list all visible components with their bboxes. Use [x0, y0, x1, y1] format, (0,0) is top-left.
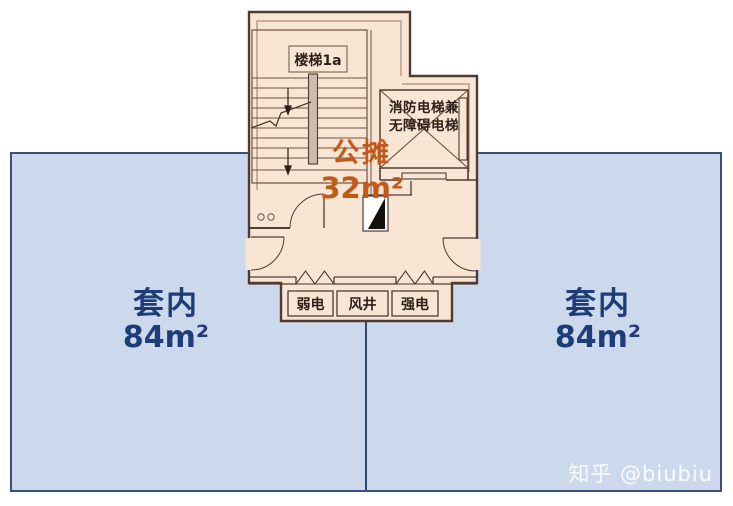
- shared-area-unit: m²: [361, 171, 404, 205]
- left-unit-size: 84m²: [101, 321, 231, 355]
- shared-area-size: 32m²: [302, 171, 422, 206]
- right-unit-label: 套内 84m²: [533, 287, 663, 355]
- left-unit-name: 套内: [101, 287, 231, 321]
- elevator-label-line2: 无障碍电梯: [380, 117, 468, 135]
- left-unit-area-value: 84: [123, 320, 165, 355]
- right-unit-size: 84m²: [533, 321, 663, 355]
- watermark: 知乎 @biubiu: [568, 458, 713, 488]
- shared-area-value: 32: [320, 171, 360, 205]
- core-floorplan-drawing: [0, 0, 733, 506]
- utility-label-strong-power: 强电: [392, 295, 438, 315]
- shared-area-name: 公摊: [302, 136, 422, 171]
- left-unit-label: 套内 84m²: [101, 287, 231, 355]
- right-unit-area-value: 84: [555, 320, 597, 355]
- left-unit-area-unit: m²: [165, 320, 209, 355]
- elevator-label: 消防电梯兼 无障碍电梯: [380, 99, 468, 135]
- stair-label: 楼梯1a: [289, 50, 347, 70]
- floorplan-canvas: 楼梯1a 消防电梯兼 无障碍电梯 公摊 32m² 弱电 风井 强电 套内 84m…: [0, 0, 733, 506]
- right-unit-area-unit: m²: [597, 320, 641, 355]
- elevator-label-line1: 消防电梯兼: [380, 99, 468, 117]
- shared-area-label: 公摊 32m²: [302, 136, 422, 206]
- utility-label-air-shaft: 风井: [337, 295, 388, 315]
- right-unit-name: 套内: [533, 287, 663, 321]
- utility-label-weak-power: 弱电: [288, 295, 333, 315]
